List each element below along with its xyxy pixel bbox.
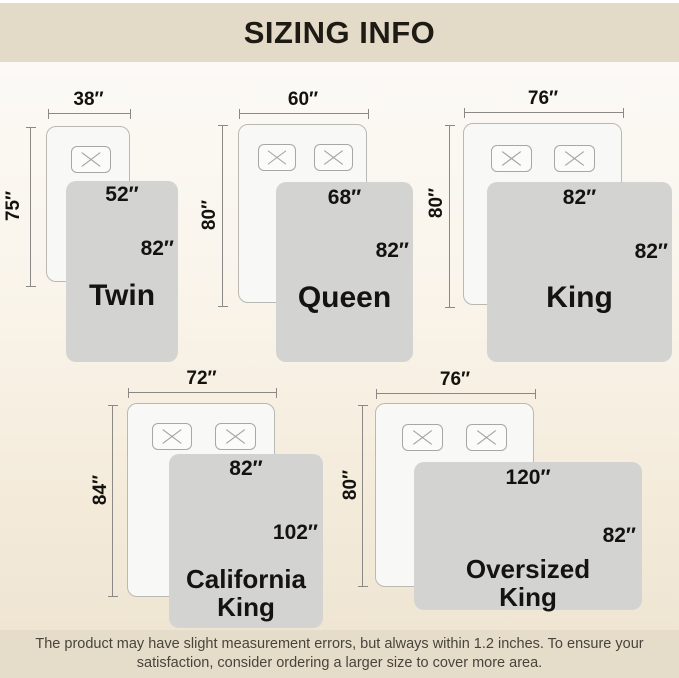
blanket-rect: 120″ 82″ Oversized King <box>414 462 642 610</box>
note-text-line-2: satisfaction, consider ordering a larger… <box>137 654 542 673</box>
note-text-line-1: The product may have slight measurement … <box>35 635 643 654</box>
blanket-length-label: 82″ <box>603 524 636 548</box>
footer-band: The product may have slight measurement … <box>0 630 679 678</box>
pillow <box>402 424 443 451</box>
sizing-info-page: SIZING INFO 38″ 75″ 52″ 82″ Twin 60″ 80″ <box>0 0 679 678</box>
length-dimension-line <box>358 405 368 587</box>
pillow-x-icon <box>467 425 506 450</box>
size-name-label: Oversized King <box>448 556 608 611</box>
blanket-width-label: 120″ <box>414 466 642 490</box>
bed-width-label: 76″ <box>376 369 534 391</box>
size-diagram-oversized-king: 76″ 80″ 120″ 82″ Oversized King <box>0 0 679 678</box>
pillow-x-icon <box>403 425 442 450</box>
pillow <box>466 424 507 451</box>
width-dimension-line <box>376 389 536 399</box>
